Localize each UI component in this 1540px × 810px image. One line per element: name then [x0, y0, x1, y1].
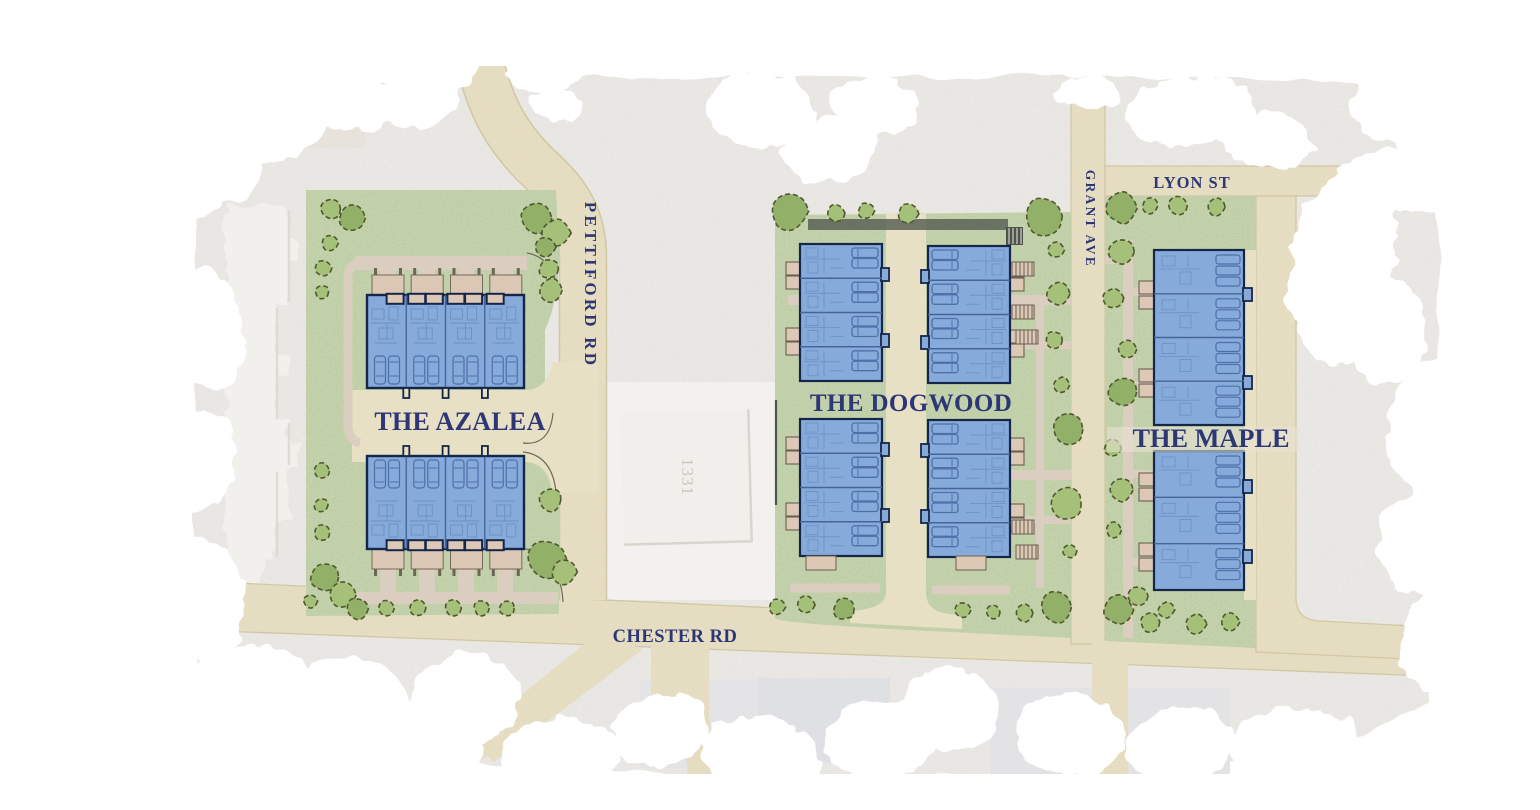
- svg-text:THE AZALEA: THE AZALEA: [374, 407, 545, 436]
- svg-text:THE MAPLE: THE MAPLE: [1132, 424, 1289, 453]
- svg-text:CHESTER RD: CHESTER RD: [613, 627, 738, 647]
- svg-text:THE DOGWOOD: THE DOGWOOD: [810, 390, 1012, 417]
- svg-text:GRANT AVE: GRANT AVE: [1083, 170, 1098, 268]
- svg-text:LYON ST: LYON ST: [1153, 173, 1230, 192]
- svg-text:PETTIFORD RD: PETTIFORD RD: [581, 202, 600, 368]
- svg-text:1331: 1331: [678, 458, 697, 496]
